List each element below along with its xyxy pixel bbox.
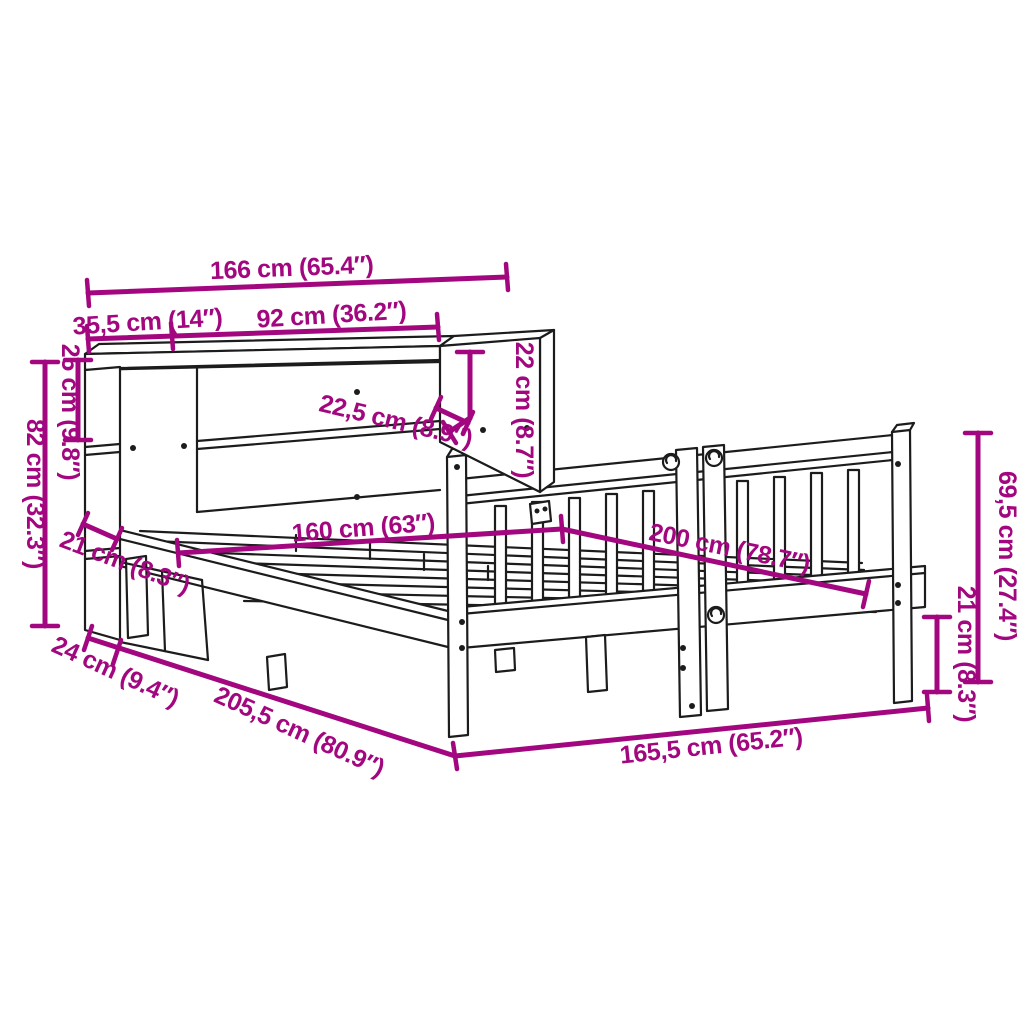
- dim-label-top-cabinet-height: 22 cm (8.7″): [510, 342, 538, 478]
- dim-label-bookcase-height: 82 cm (32.3″): [21, 419, 49, 569]
- dim-label-total-width: 166 cm (65.4″): [210, 251, 374, 285]
- dim-label-headboard-height: 69,5 cm (27.4″): [993, 471, 1021, 641]
- dim-label-bed-width: 160 cm (63″): [291, 508, 436, 547]
- dim-label-bookcase-depth: 24 cm (9.4″): [47, 631, 183, 713]
- dim-label-frame-length: 205,5 cm (80.9″): [210, 681, 389, 783]
- dim-label-top-shelf-height: 25 cm (9.8″): [56, 344, 84, 480]
- dim-label-leg-height: 21 cm (8.3″): [952, 586, 980, 722]
- diagram-canvas: 166 cm (65.4″) 35,5 cm (14″) 92 cm (36.2…: [0, 0, 1024, 1024]
- bed-dimension-diagram: 166 cm (65.4″) 35,5 cm (14″) 92 cm (36.2…: [0, 0, 1024, 1024]
- dimension-labels: 166 cm (65.4″) 35,5 cm (14″) 92 cm (36.2…: [21, 251, 1021, 783]
